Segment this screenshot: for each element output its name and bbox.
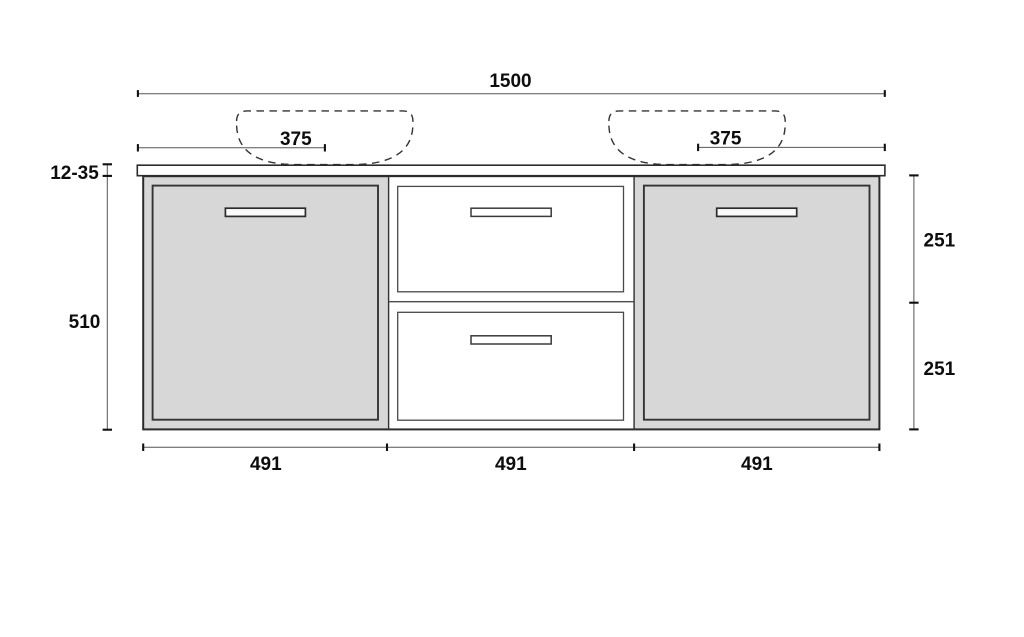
svg-text:375: 375	[280, 129, 312, 150]
svg-text:1500: 1500	[489, 71, 531, 92]
svg-text:491: 491	[741, 454, 773, 475]
svg-text:491: 491	[250, 454, 282, 475]
svg-text:491: 491	[495, 454, 527, 475]
svg-text:251: 251	[924, 359, 956, 380]
svg-text:12-35: 12-35	[50, 163, 99, 184]
svg-text:251: 251	[924, 231, 956, 252]
svg-text:375: 375	[710, 129, 742, 150]
svg-text:510: 510	[69, 312, 101, 333]
